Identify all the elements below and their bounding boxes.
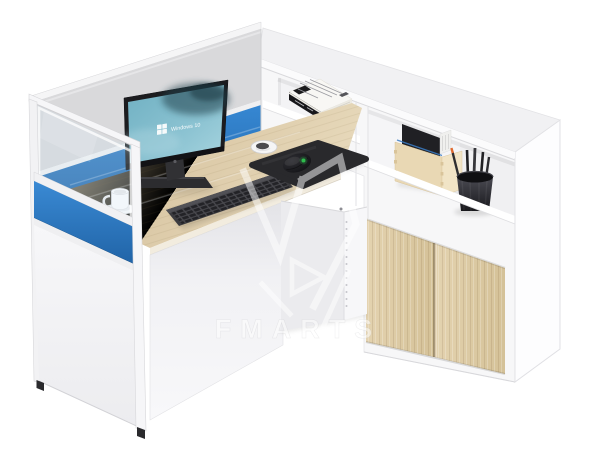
product-render-office-workstation: Windows 10 FMARTS: [0, 0, 600, 450]
monitor-brand-logo: [173, 160, 176, 163]
wallpaper-smoke-dark: [190, 83, 226, 101]
pedestal-screw: [340, 208, 343, 211]
mouse-led: [302, 159, 306, 163]
pencil-tip: [451, 148, 452, 153]
cable-grommet: [251, 141, 277, 154]
grommet-hole: [256, 143, 269, 149]
watermark-text: FMARTS: [215, 314, 381, 344]
cabinet-end-side-panel: [515, 120, 560, 382]
scene-canvas: Windows 10 FMARTS: [0, 0, 600, 450]
